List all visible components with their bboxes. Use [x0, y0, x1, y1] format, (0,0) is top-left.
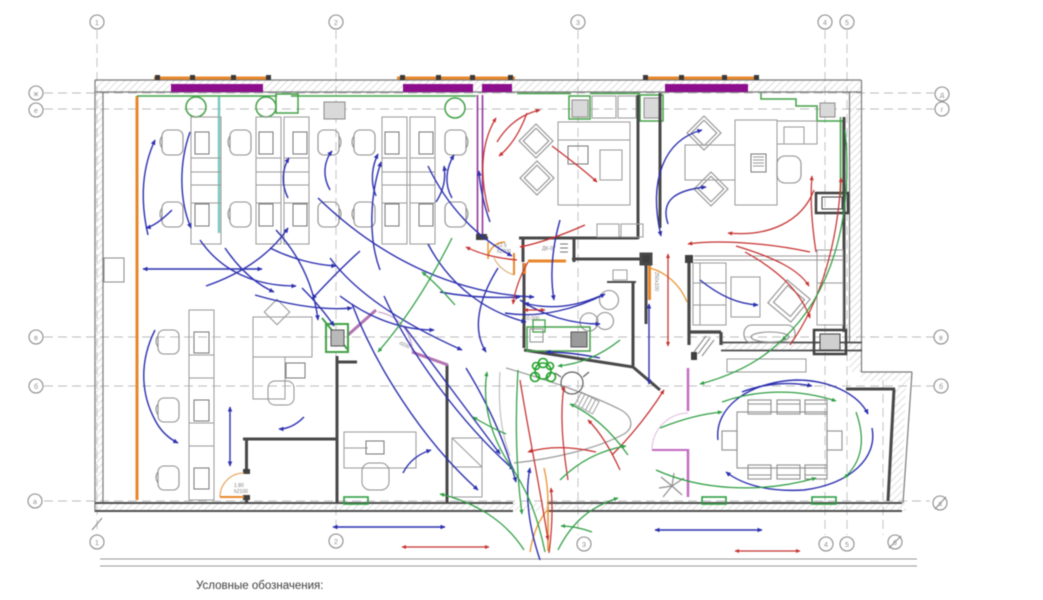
- svg-text:5: 5: [845, 20, 849, 27]
- svg-text:2: 2: [334, 20, 338, 27]
- svg-text:4: 4: [824, 542, 828, 549]
- svg-text:в: в: [34, 335, 38, 342]
- svg-text:h2100: h2100: [234, 489, 248, 495]
- svg-text:г: г: [941, 107, 944, 114]
- svg-text:2: 2: [334, 539, 338, 546]
- svg-text:б: б: [34, 383, 38, 391]
- svg-text:е: е: [34, 108, 38, 115]
- svg-text:в: в: [939, 335, 943, 342]
- svg-text:1: 1: [95, 20, 99, 27]
- svg-text:3: 3: [576, 20, 580, 27]
- svg-text:4: 4: [823, 20, 827, 27]
- svg-text:6: 6: [893, 540, 897, 547]
- svg-text:а: а: [938, 501, 942, 508]
- svg-text:Условные обозначения:: Условные обозначения:: [196, 580, 323, 592]
- svg-text:ж: ж: [34, 91, 39, 98]
- svg-text:±0.000: ±0.000: [524, 316, 539, 322]
- svg-text:3: 3: [582, 542, 586, 549]
- svg-text:1: 1: [95, 540, 99, 547]
- svg-text:а: а: [33, 499, 37, 506]
- svg-text:250x100: 250x100: [653, 272, 659, 291]
- svg-text:5: 5: [845, 542, 849, 549]
- svg-text:д: д: [940, 92, 944, 99]
- svg-text:б: б: [939, 383, 943, 391]
